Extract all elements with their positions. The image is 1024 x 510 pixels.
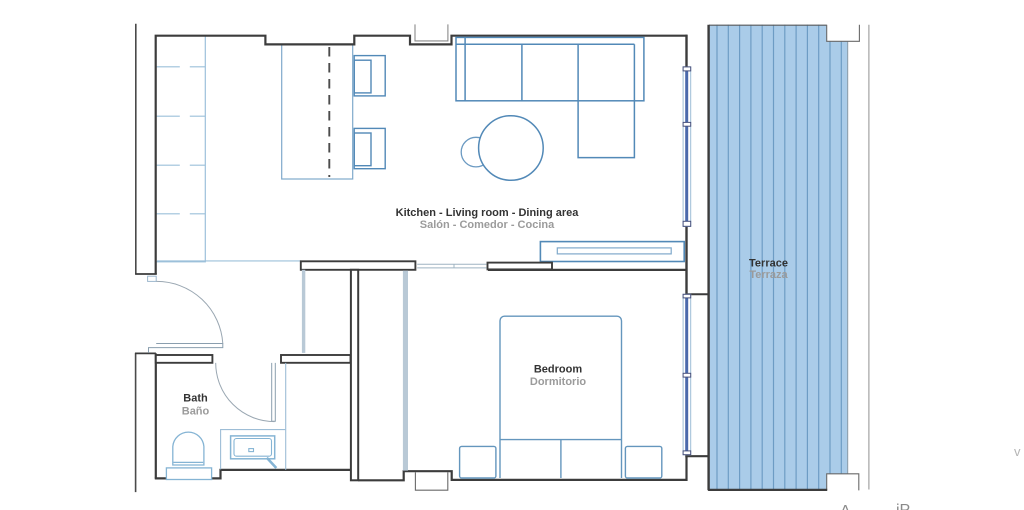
svg-text:Terrace: Terrace: [749, 258, 788, 270]
svg-text:Dormitorio: Dormitorio: [530, 376, 587, 388]
svg-text:v: v: [1014, 444, 1021, 459]
svg-text:iP: iP: [896, 502, 910, 510]
svg-text:Baño: Baño: [182, 406, 210, 418]
svg-text:Kitchen - Living room - Dining: Kitchen - Living room - Dining area: [396, 207, 580, 219]
svg-text:A: A: [840, 503, 851, 510]
svg-text:Bath: Bath: [183, 393, 208, 405]
svg-text:Bedroom: Bedroom: [534, 364, 583, 376]
svg-text:Salón - Comedor - Cocina: Salón - Comedor - Cocina: [420, 219, 555, 231]
svg-text:Terraza: Terraza: [749, 269, 788, 281]
